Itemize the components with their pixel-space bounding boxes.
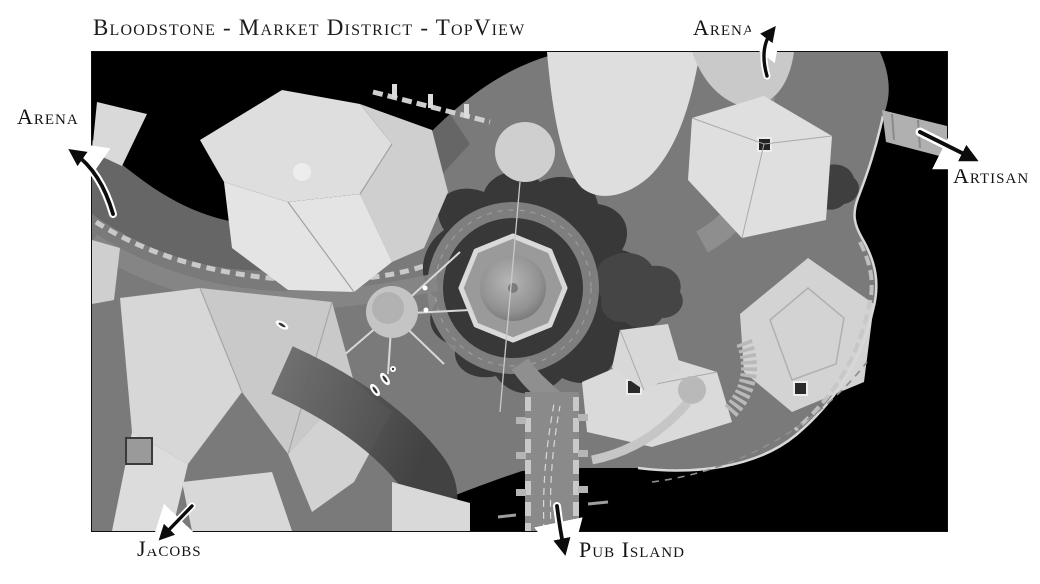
label-arena-north: Arena: [693, 15, 755, 41]
map-render: [92, 52, 947, 531]
page: Bloodstone - Market District - TopView: [0, 0, 1040, 584]
label-pub-island: Pub Island: [579, 537, 685, 563]
round-landing: [678, 376, 706, 404]
map-artwork: [92, 52, 947, 531]
roof-dome-disc: [495, 122, 555, 182]
label-arena-west: Arena: [17, 104, 79, 130]
label-artisan: Artisan: [953, 163, 1029, 189]
label-jacobs: Jacobs: [137, 536, 202, 562]
page-title: Bloodstone - Market District - TopView: [93, 15, 525, 41]
